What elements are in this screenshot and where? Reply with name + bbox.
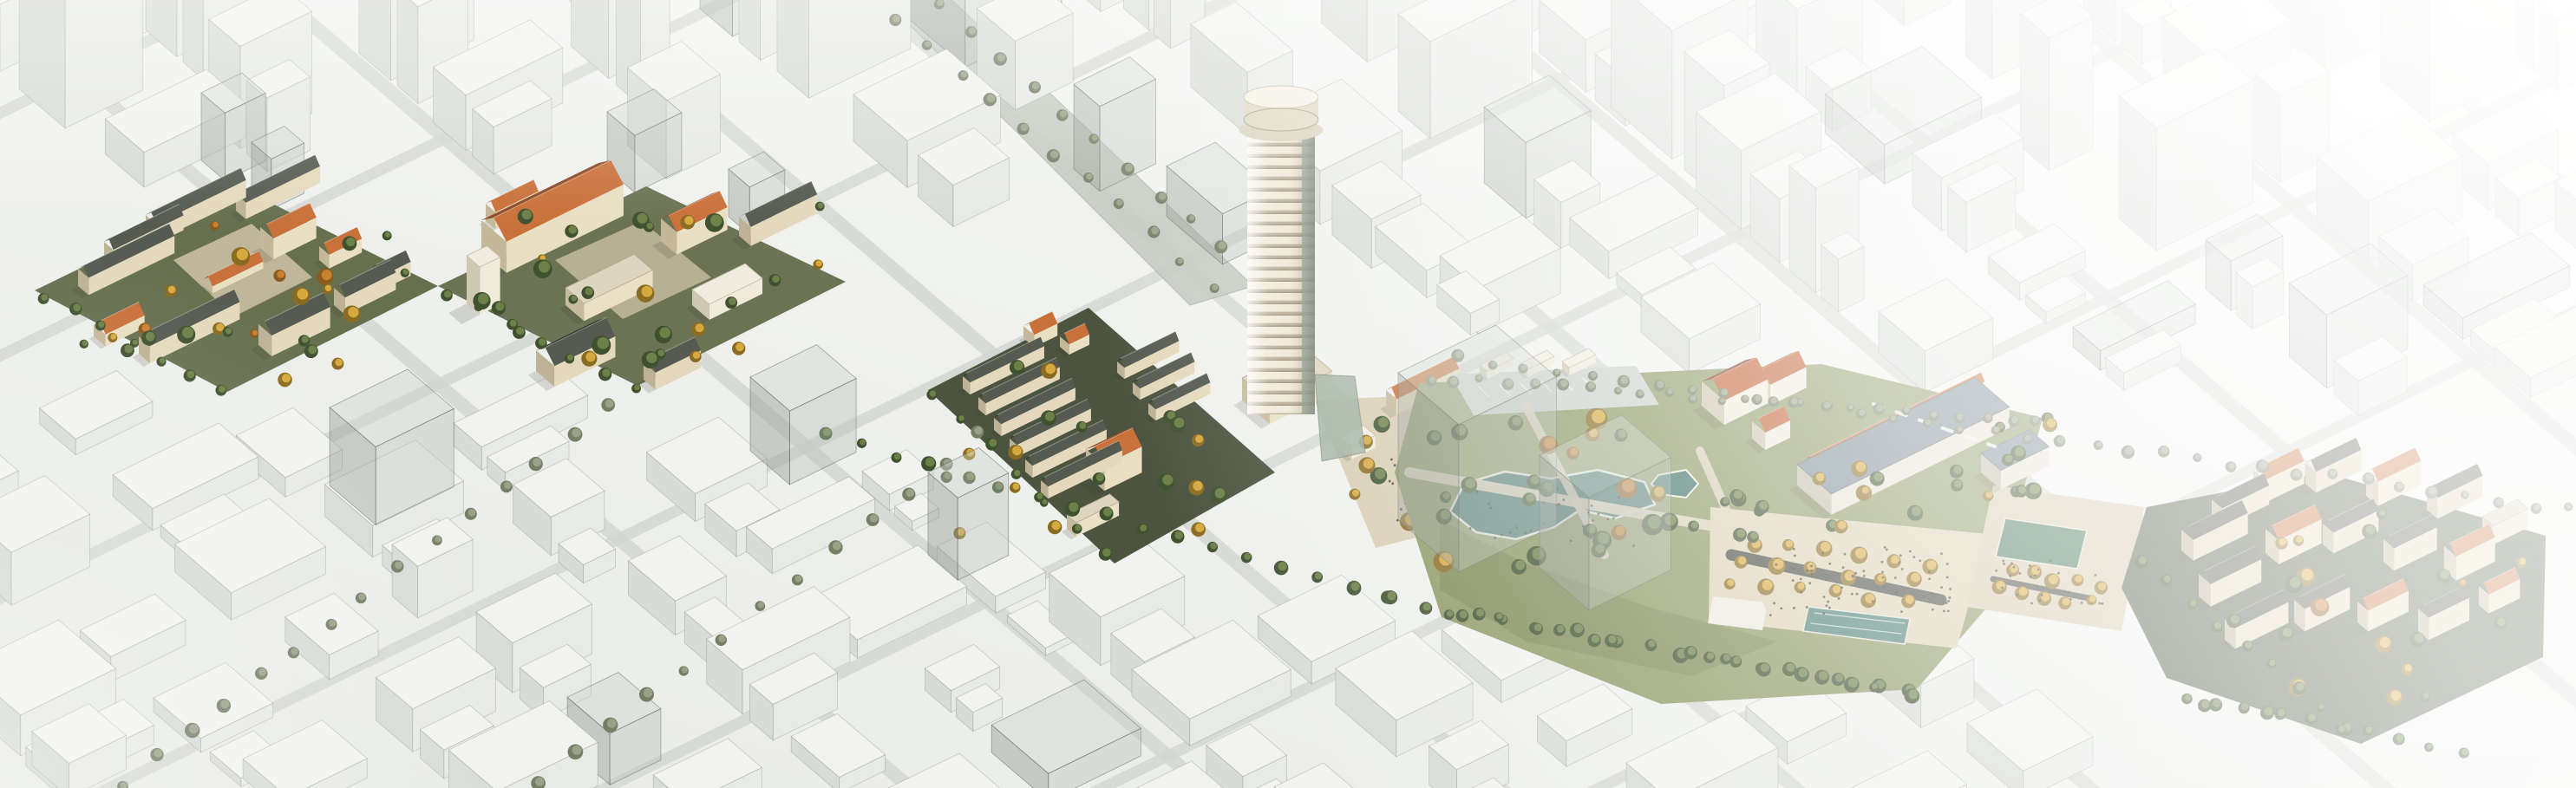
atmosphere-fades <box>0 0 2576 788</box>
fade-bottom-right <box>0 0 2576 788</box>
rendering-canvas <box>0 0 2576 788</box>
masterplan-rendering <box>0 0 2576 788</box>
